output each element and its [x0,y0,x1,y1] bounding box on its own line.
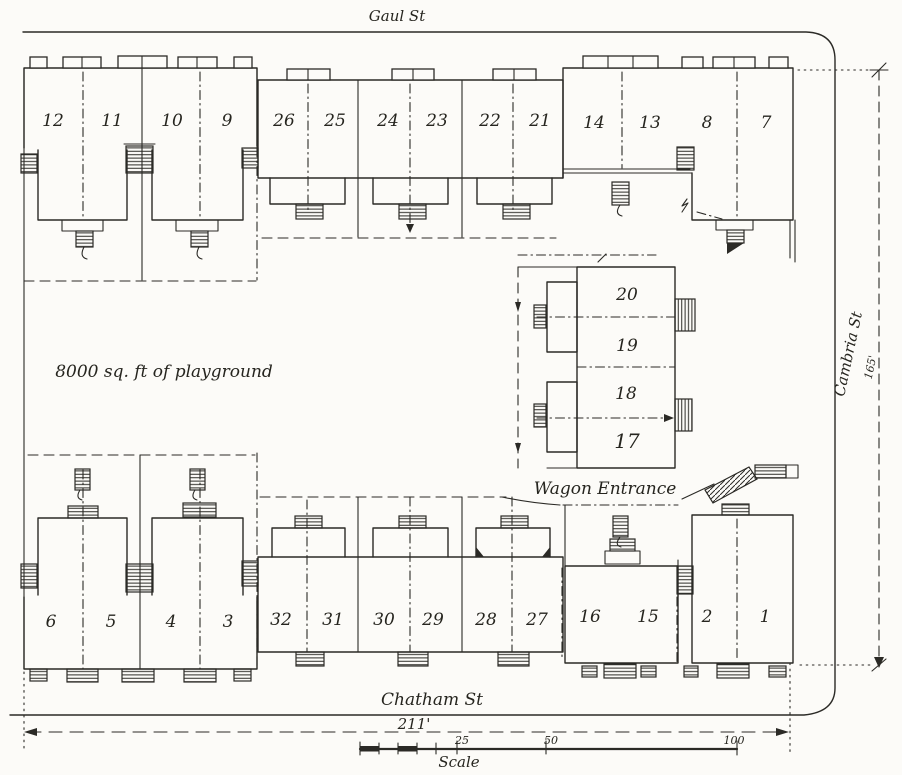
stair-symbol [501,516,528,528]
stair-symbol [242,561,258,586]
stair-hook [197,247,202,259]
block-outline [692,515,793,663]
unit-28-label: 28 [474,610,497,630]
stair-hook [82,247,87,259]
block-top-left: 12 11 10 9 [21,56,258,281]
unit-11-label: 11 [101,111,123,131]
zigzag-mark [682,199,688,212]
stair-symbol [503,204,530,219]
dim-bottom-value: 211' [397,715,431,733]
stair-hook [78,490,82,500]
lot-boundary [10,32,835,752]
stoop-symbol [498,652,529,666]
block-top-right: 14 13 8 7 [563,56,795,262]
corner-wedge [542,547,550,557]
block-outline [563,68,793,220]
unit-3-label: 3 [223,612,234,632]
wing-outline [152,518,243,595]
dim-right-value: 165' [862,354,880,380]
porch-tab [176,220,218,231]
stoop-symbol [641,666,656,677]
porch-tab [716,220,753,230]
unit-30-label: 30 [373,610,395,630]
dim-arrow [515,443,521,453]
playground-label: 8000 sq. ft of playground [55,362,273,382]
divider-arrow [406,224,414,233]
stair-symbol [722,504,749,515]
chimney [769,57,788,68]
site-plan-drawing: Gaul St Chatham St Cambria St 165' 211' … [0,0,902,775]
stair-symbol [675,399,692,431]
stair-symbol [399,516,426,528]
street-label-chatham: Chatham St [381,690,483,710]
stair-symbol [76,231,93,247]
stoop-symbol [67,669,98,682]
stoop-symbol [604,664,636,678]
stoop-symbol [234,669,251,681]
corner-wedge [476,547,484,557]
unit-4-label: 4 [165,612,177,632]
stair-symbol [191,231,208,247]
unit-22-label: 22 [478,111,501,131]
chimney [583,56,658,68]
stair-hook [617,205,622,216]
unit-6-label: 6 [46,612,57,632]
unit-8-label: 8 [702,113,713,133]
stair-symbol [727,230,744,243]
unit-7-label: 7 [761,113,772,133]
unit-13-label: 13 [639,113,661,133]
stair-symbol [295,516,322,528]
stair-symbol [190,469,205,490]
scale-tick-50: 50 [544,734,558,747]
street-label-cambria: Cambria St [830,309,866,398]
unit-16-label: 16 [579,607,601,627]
stair-symbol [126,146,153,173]
stair-symbol [399,204,426,219]
unit-24-label: 24 [376,111,399,131]
stair-symbol [534,404,546,427]
porch-tab [605,551,640,564]
block-bottom-left: 6 5 4 3 [21,453,258,682]
stair-symbol [21,154,37,173]
unit-9-label: 9 [222,111,233,131]
unit-15-label: 15 [637,607,659,627]
leader-line [697,212,722,219]
stoop-symbol [184,669,216,682]
porch-tab [62,220,103,231]
stoop-symbol [582,666,597,677]
stoop-symbol [296,652,324,666]
unit-29-label: 29 [421,610,444,630]
stoop-symbol [30,669,47,681]
chimney [682,57,703,68]
stair-symbol [610,539,635,551]
dim-arrow [515,302,521,312]
chimney [234,57,252,68]
street-label-gaul: Gaul St [369,7,426,25]
block-middle-right: 20 19 18 17 [515,254,695,468]
stair-symbol [612,182,629,205]
unit-14-label: 14 [583,113,605,133]
block-top-middle: 26 25 24 23 22 21 [258,69,563,238]
unit-5-label: 5 [106,612,117,632]
stair-hook [193,490,197,500]
unit-19-label: 19 [616,336,638,356]
unit-23-label: 23 [425,111,448,131]
unit-2-label: 2 [701,607,713,627]
divider-arrow [664,414,674,422]
stair-symbol [296,204,323,219]
scale-tick-25: 25 [454,734,469,747]
scale-bar-segment [398,746,417,752]
unit-18-label: 18 [615,384,637,404]
chimney [30,57,47,68]
scale-tick-100: 100 [724,734,745,747]
stair-symbol [677,566,693,594]
unit-31-label: 31 [322,610,344,630]
landing-square [786,465,798,478]
unit-12-label: 12 [42,111,64,131]
stoop-symbol [398,652,428,666]
side-wall [790,220,795,262]
wing-outline [152,150,243,220]
stair-symbol [21,564,37,588]
stair-symbol [675,299,695,331]
unit-20-label: 20 [615,285,638,305]
bay-outline [477,178,552,204]
unit-27-label: 27 [525,610,548,630]
scale-label: Scale [438,753,479,771]
stair-wedge [727,243,744,254]
bay-outline [272,528,345,557]
dim-bottom-arrow-right [776,728,789,736]
stoop-symbol [122,669,154,682]
unit-21-label: 21 [528,111,551,131]
unit-10-label: 10 [161,111,183,131]
bay-outline [476,528,550,557]
wagon-entrance-label: Wagon Entrance [534,479,677,499]
unit-25-label: 25 [323,111,346,131]
stair-symbol [242,148,258,168]
stoop-symbol [769,666,786,677]
inner-wall [563,169,692,173]
unit-1-label: 1 [760,607,771,627]
dim-bottom-arrow-left [24,728,37,736]
scale-bar-segment [360,746,379,752]
block-outline [24,68,257,148]
stoop-symbol [684,666,698,677]
stoop-symbol [717,664,749,678]
stair-symbol [613,516,628,537]
stair-symbol [755,465,786,478]
block-bottom-middle: 32 31 30 29 28 27 [258,497,563,666]
unit-17-label: 17 [614,429,640,453]
stair-symbol [677,147,694,170]
bay-outline [547,382,577,452]
scale-bar: 25 50 100 Scale [360,734,745,771]
unit-32-label: 32 [270,610,292,630]
unit-26-label: 26 [272,111,295,131]
wagon-entrance: Wagon Entrance [502,479,714,505]
plan-canvas: Gaul St Chatham St Cambria St 165' 211' … [0,0,902,775]
